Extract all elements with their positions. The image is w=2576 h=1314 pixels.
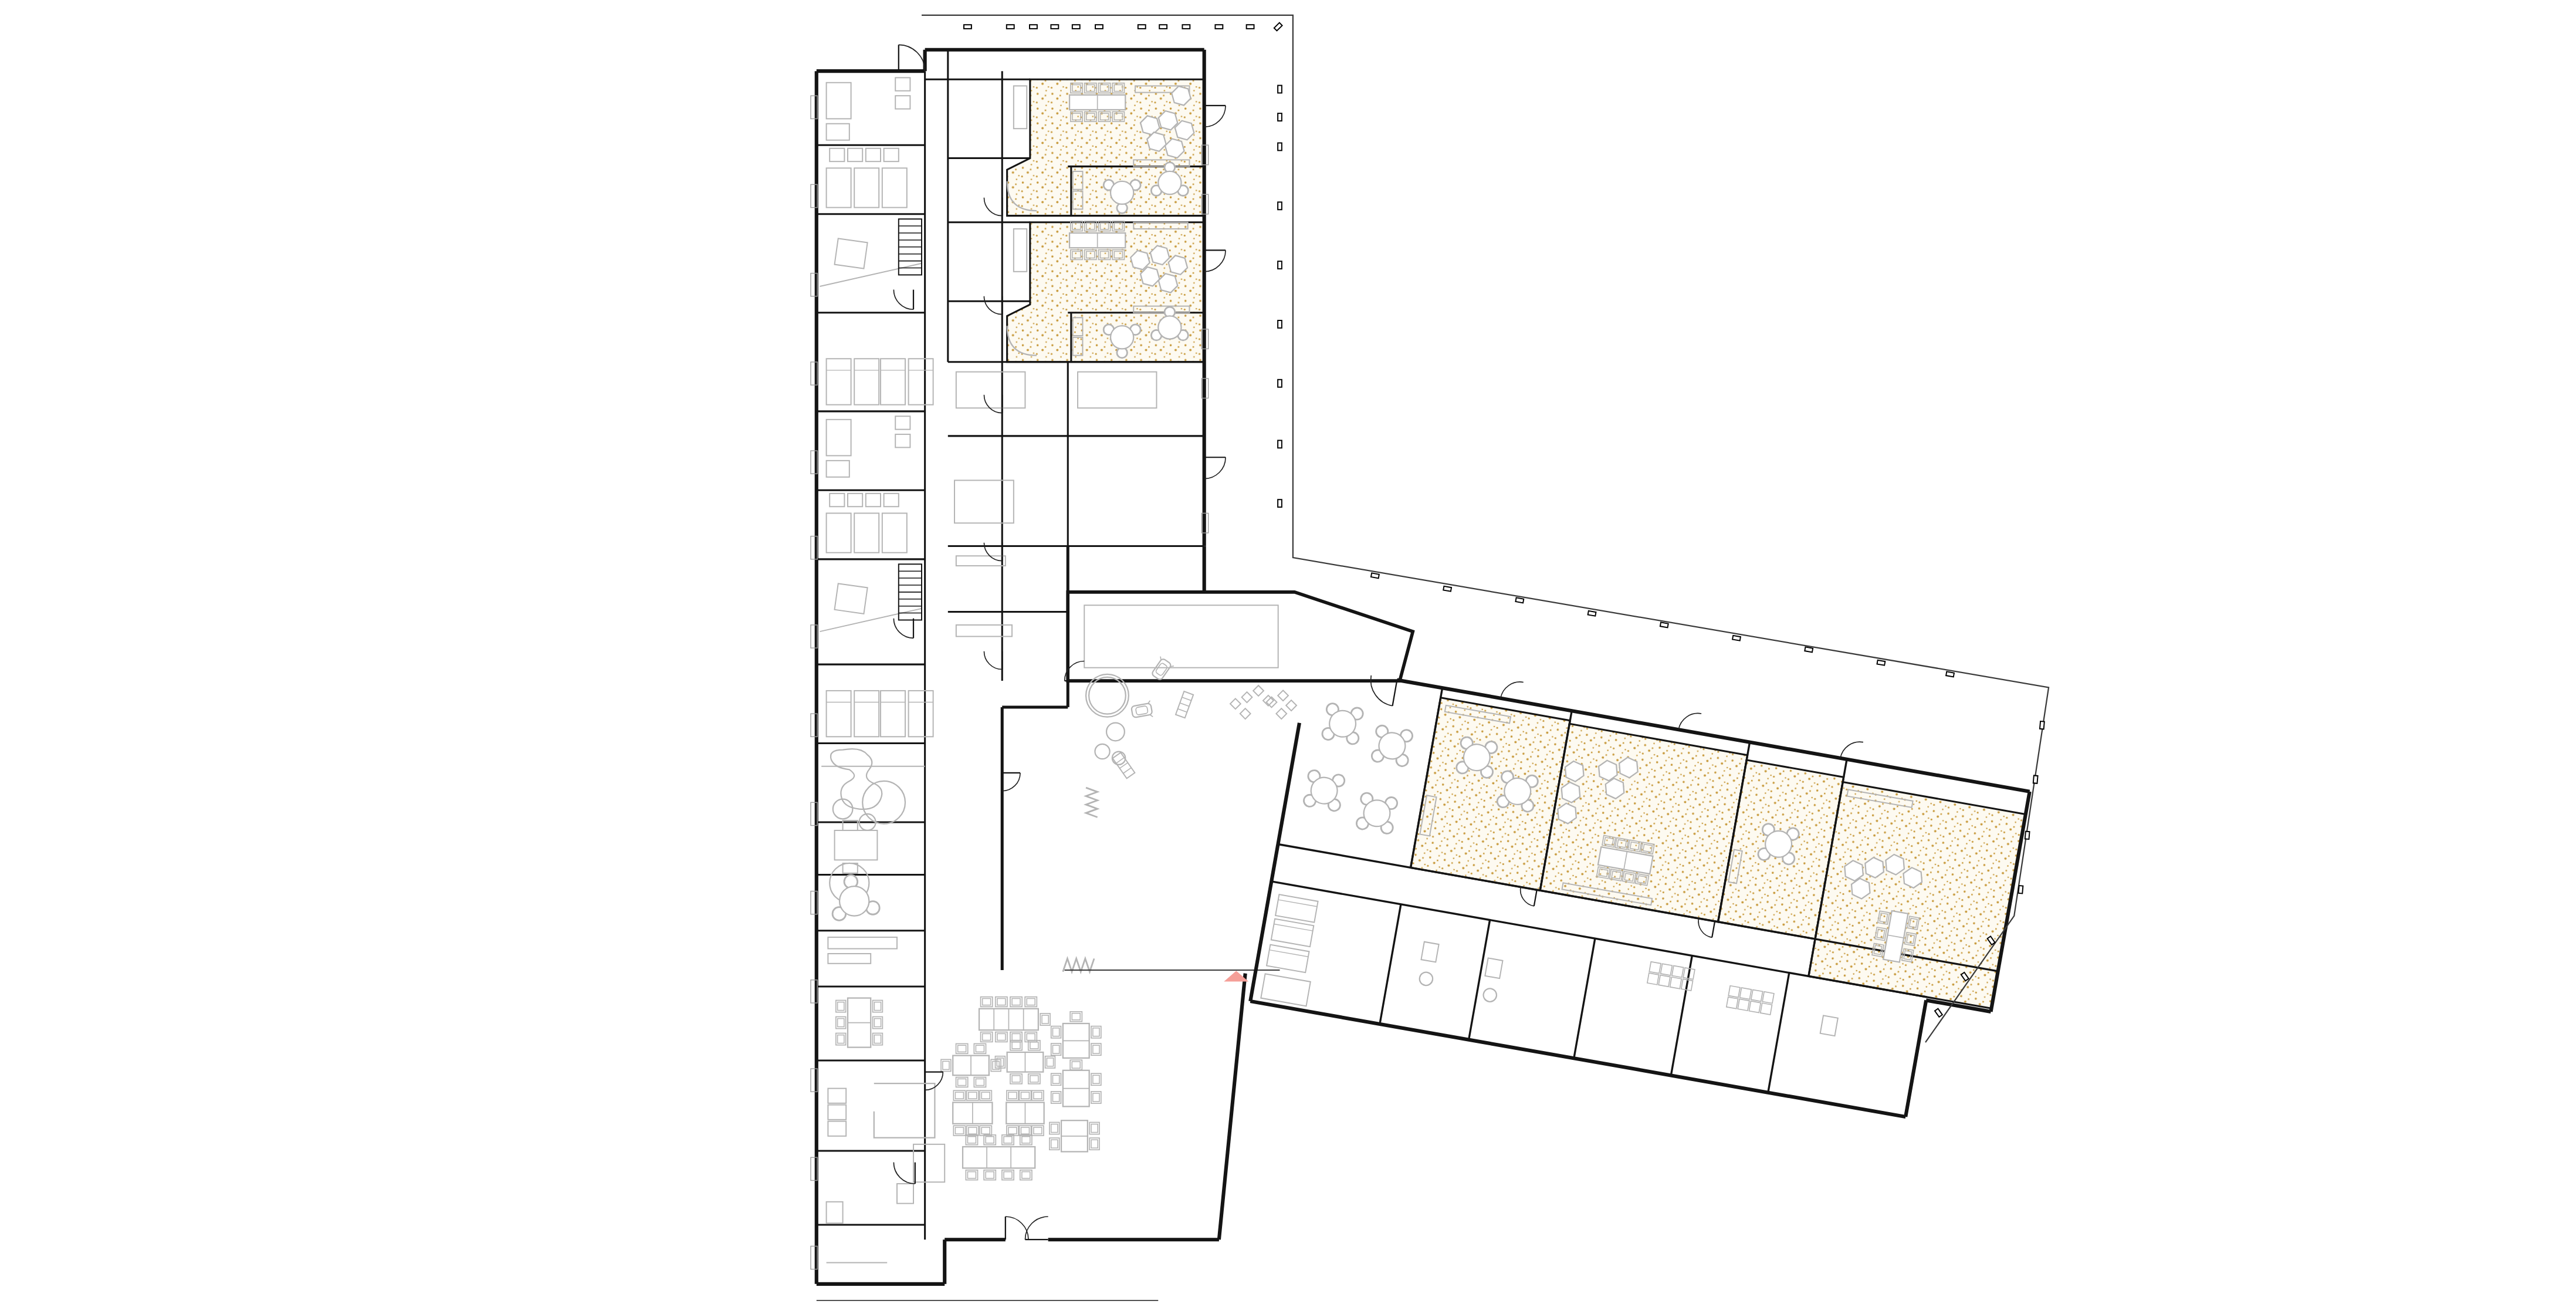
locker-grid xyxy=(1740,988,1752,999)
chair-inner xyxy=(1052,1075,1059,1083)
round-table xyxy=(1111,181,1133,204)
furniture xyxy=(830,494,844,506)
furniture xyxy=(1014,229,1027,272)
chair-inner xyxy=(838,1002,844,1011)
chair xyxy=(1070,1060,1082,1070)
ladder-toy-step xyxy=(1120,763,1128,769)
column-tick xyxy=(1215,25,1223,29)
column-tick xyxy=(2025,832,2030,839)
chair xyxy=(1050,1138,1059,1150)
chair xyxy=(980,1090,991,1100)
cot-bed xyxy=(1267,945,1309,973)
column-tick xyxy=(1278,143,1282,151)
door-arc xyxy=(1678,710,1701,733)
chair xyxy=(1032,1090,1044,1100)
column-tick xyxy=(1805,647,1813,652)
chair xyxy=(974,1043,986,1053)
furniture xyxy=(866,148,881,161)
furniture xyxy=(882,168,907,207)
round-table xyxy=(832,875,879,921)
chair xyxy=(1020,1135,1032,1145)
chair xyxy=(1051,1092,1061,1103)
door-arc xyxy=(899,45,925,71)
table-group xyxy=(1050,1120,1099,1151)
furniture xyxy=(848,148,862,161)
chair xyxy=(967,1090,979,1100)
chair-inner xyxy=(1012,1076,1020,1082)
chair xyxy=(1070,1012,1082,1022)
chair-inner xyxy=(997,998,1006,1005)
furniture xyxy=(827,513,851,552)
column-tick xyxy=(964,25,971,29)
interior-wall xyxy=(1469,920,1490,1040)
round-table xyxy=(1111,326,1133,349)
chair-inner xyxy=(1034,1127,1042,1134)
column-tick xyxy=(1371,573,1379,578)
chair-inner xyxy=(1022,1172,1030,1178)
table-group xyxy=(836,998,883,1048)
door-arc xyxy=(925,1072,943,1090)
column-tick xyxy=(1515,597,1524,603)
table-group xyxy=(1006,1090,1044,1136)
chair xyxy=(1091,1043,1101,1055)
play-cushion xyxy=(1278,690,1288,701)
chair xyxy=(966,1170,977,1180)
furniture xyxy=(895,96,910,109)
ladder-toy-step xyxy=(1123,768,1132,773)
car-detail xyxy=(1150,714,1153,717)
door-arc xyxy=(1002,773,1020,791)
chair-inner xyxy=(1012,1033,1020,1040)
chair xyxy=(1051,1073,1061,1085)
chair xyxy=(873,1017,883,1029)
chair-inner xyxy=(976,1079,984,1085)
chair-inner xyxy=(874,1035,881,1043)
chair xyxy=(873,1033,883,1045)
column-tick xyxy=(1278,440,1282,448)
furniture xyxy=(884,148,899,161)
chair-inner xyxy=(1012,1042,1020,1049)
floor-plan-drawing xyxy=(0,0,2576,1314)
door-arc xyxy=(899,45,925,71)
chair xyxy=(1019,1126,1031,1136)
chair xyxy=(836,1033,846,1045)
group-room-floor xyxy=(1540,724,1747,922)
counter xyxy=(1261,974,1311,1006)
door-arc xyxy=(984,651,1002,670)
table-top xyxy=(963,1147,1035,1168)
column-tick xyxy=(1007,25,1014,29)
chair xyxy=(966,1135,977,1145)
column-tick xyxy=(1138,25,1146,29)
column-tick xyxy=(1051,25,1058,29)
group-room-floor xyxy=(1809,782,2026,1008)
door-arc xyxy=(893,290,913,310)
column-tick xyxy=(1278,202,1282,210)
furniture xyxy=(895,77,910,90)
furniture xyxy=(1014,86,1027,129)
door-arc xyxy=(984,198,1002,216)
counter xyxy=(1421,942,1438,962)
chair-inner xyxy=(874,1002,881,1011)
furniture xyxy=(956,372,1025,408)
chair-inner xyxy=(838,1019,844,1027)
column-tick xyxy=(1443,586,1451,592)
play-cushion xyxy=(1242,692,1253,702)
chair-inner xyxy=(1027,1033,1035,1040)
chair xyxy=(981,1032,993,1042)
locker-grid xyxy=(1738,999,1749,1011)
furniture xyxy=(895,416,910,429)
column-tick xyxy=(1095,25,1103,29)
door-leaf xyxy=(1393,680,1397,706)
furniture xyxy=(828,954,871,964)
play-circle xyxy=(862,781,905,824)
door-arc xyxy=(1204,106,1226,127)
play-cushion xyxy=(1230,698,1241,709)
chair-inner xyxy=(1004,1137,1012,1143)
right-wing xyxy=(1250,645,2033,1128)
chair xyxy=(996,1032,1007,1042)
door-arc xyxy=(984,395,1002,413)
column-tick xyxy=(1072,25,1080,29)
furniture xyxy=(1078,372,1156,408)
chair-inner xyxy=(1030,1076,1038,1082)
interior-wall xyxy=(1671,955,1692,1075)
door-arc xyxy=(1204,457,1226,478)
chair-inner xyxy=(976,1045,984,1052)
column-tick xyxy=(1159,25,1167,29)
chair-inner xyxy=(983,1033,991,1040)
chair xyxy=(1010,1074,1022,1084)
chair-inner xyxy=(1034,1092,1042,1099)
furniture xyxy=(828,937,897,949)
chair-inner xyxy=(1021,1127,1029,1134)
chair-inner xyxy=(955,1127,963,1134)
chair xyxy=(1045,1056,1055,1068)
chair-inner xyxy=(1012,998,1020,1005)
chair xyxy=(984,1135,996,1145)
furniture xyxy=(828,1122,846,1136)
chair-inner xyxy=(997,1033,1006,1040)
counter xyxy=(1820,1015,1838,1036)
play-cushion xyxy=(1253,685,1264,696)
ladder-toy-step xyxy=(1180,703,1189,707)
locker-grid xyxy=(1670,977,1681,989)
car-body xyxy=(1131,703,1152,718)
furniture xyxy=(827,1202,843,1223)
column-tick xyxy=(1588,611,1596,616)
column-tick xyxy=(1182,25,1190,29)
door-arc xyxy=(1204,250,1226,271)
column-tick xyxy=(1278,499,1282,507)
interior-wall xyxy=(1380,904,1401,1024)
chair xyxy=(974,1077,986,1087)
furniture xyxy=(827,461,849,477)
door-arc xyxy=(893,619,913,639)
chair-inner xyxy=(1091,1124,1098,1133)
cot-bed xyxy=(881,691,905,737)
furniture xyxy=(866,494,881,506)
chair xyxy=(873,1001,883,1012)
door-arc xyxy=(893,1163,915,1184)
round-table xyxy=(1158,316,1181,339)
furniture xyxy=(1084,605,1278,667)
chair-inner xyxy=(1072,1014,1080,1020)
chair-inner xyxy=(1093,1028,1099,1036)
cot-bed xyxy=(909,691,933,737)
door-arc xyxy=(1002,773,1020,791)
car-detail xyxy=(1147,701,1150,704)
table-group xyxy=(995,1041,1055,1084)
cot-bed xyxy=(1271,919,1314,947)
ladder-toy xyxy=(1113,752,1135,778)
table-group xyxy=(953,1090,992,1136)
chair-inner xyxy=(969,1127,977,1134)
door-arc xyxy=(984,395,1002,413)
chair xyxy=(836,1017,846,1029)
furniture xyxy=(827,168,851,207)
chair-inner xyxy=(1093,1045,1099,1053)
chair-inner xyxy=(874,1019,881,1027)
furniture xyxy=(828,1105,846,1120)
cot-bed xyxy=(854,691,879,737)
door-arc xyxy=(925,1072,943,1090)
cot-bed xyxy=(827,359,851,404)
play-circle xyxy=(833,799,853,819)
chair xyxy=(1002,1170,1014,1180)
car-cabin xyxy=(1135,705,1148,715)
play-circle xyxy=(1089,677,1126,714)
column-tick xyxy=(1946,671,1954,677)
chair xyxy=(953,1090,965,1100)
chair xyxy=(1007,1090,1018,1100)
column-tick xyxy=(1278,380,1282,387)
door-arc xyxy=(893,290,913,310)
chair xyxy=(980,1126,991,1136)
door-arc xyxy=(1204,457,1226,478)
wc-fixture xyxy=(1419,971,1434,987)
chair-inner xyxy=(1072,1062,1080,1068)
round-table xyxy=(1158,171,1181,194)
chair xyxy=(1010,997,1022,1007)
column-tick xyxy=(1935,1009,1942,1017)
round-table xyxy=(840,886,869,916)
exterior-wall xyxy=(1250,1001,1905,1117)
car-body xyxy=(1151,658,1172,681)
chair xyxy=(1025,997,1037,1007)
cot-bed-line xyxy=(1270,950,1308,957)
chair xyxy=(1032,1126,1044,1136)
column-tick xyxy=(1278,113,1282,121)
door-leaf xyxy=(1712,921,1715,938)
door-leaf xyxy=(1534,890,1537,906)
ladder-toy xyxy=(1176,691,1193,718)
chair-inner xyxy=(1008,1092,1017,1099)
locker-grid xyxy=(1749,1001,1761,1013)
round-table xyxy=(1371,725,1413,767)
play-circle xyxy=(1095,744,1109,759)
chair xyxy=(1028,1074,1040,1084)
column-tick xyxy=(2040,721,2044,729)
ladder-toy-step xyxy=(1182,697,1191,701)
interior-wall xyxy=(1768,973,1789,1093)
chair xyxy=(1002,1135,1014,1145)
furniture xyxy=(827,420,851,456)
chair xyxy=(1040,1014,1050,1025)
play-cushion xyxy=(1286,700,1297,711)
chair xyxy=(1091,1092,1101,1103)
column-tick xyxy=(1274,23,1282,31)
column-tick xyxy=(1278,320,1282,328)
play-cushion xyxy=(1276,708,1287,719)
door-arc xyxy=(1204,106,1226,127)
counter xyxy=(1485,958,1502,978)
sofa xyxy=(835,238,868,268)
chair xyxy=(984,1170,996,1180)
chair-inner xyxy=(1022,1137,1030,1143)
chair-inner xyxy=(1027,998,1035,1005)
chair-inner xyxy=(1093,1093,1099,1102)
chair-inner xyxy=(943,1061,949,1069)
wc-fixture xyxy=(1482,988,1498,1003)
chair-inner xyxy=(955,1092,963,1099)
chair xyxy=(956,1077,968,1087)
table-group xyxy=(1051,1012,1101,1070)
chair-inner xyxy=(1030,1042,1038,1049)
chair xyxy=(941,1059,951,1071)
play-cushion xyxy=(1240,708,1251,719)
chair xyxy=(1007,1126,1018,1136)
chair-inner xyxy=(1051,1140,1058,1148)
column-tick xyxy=(1278,86,1282,93)
locker-grid xyxy=(1658,975,1670,987)
door-arc xyxy=(1204,250,1226,271)
chair-inner xyxy=(981,1092,990,1099)
chair xyxy=(996,997,1007,1007)
chair-inner xyxy=(967,1137,976,1143)
column-tick xyxy=(2019,886,2023,893)
furniture xyxy=(827,124,849,140)
chair-inner xyxy=(1052,1028,1059,1036)
chair xyxy=(1020,1170,1032,1180)
cot-bed xyxy=(1275,894,1318,923)
cot-bed-line xyxy=(1278,900,1317,907)
locker-grid xyxy=(1649,962,1661,974)
chair xyxy=(1010,1041,1022,1050)
cot-bed xyxy=(827,691,851,737)
chair xyxy=(1051,1043,1061,1055)
furniture xyxy=(897,1184,913,1204)
exterior-wall xyxy=(1905,1000,1926,1117)
furniture xyxy=(854,513,879,552)
plan-layers xyxy=(811,15,2049,1301)
ladder-toy-step xyxy=(1178,709,1187,712)
furniture xyxy=(882,513,907,552)
door-arc xyxy=(893,1163,915,1184)
chair xyxy=(1019,1090,1031,1100)
chair-inner xyxy=(1008,1127,1017,1134)
exterior-wall xyxy=(1250,723,1299,1001)
chair xyxy=(981,997,993,1007)
locker-grid xyxy=(1672,966,1684,978)
furniture xyxy=(848,494,862,506)
furniture xyxy=(854,168,879,207)
chair-inner xyxy=(969,1092,977,1099)
chair-inner xyxy=(983,998,991,1005)
chair-inner xyxy=(1021,1092,1029,1099)
chair xyxy=(836,1001,846,1012)
chair-inner xyxy=(838,1035,844,1043)
column-tick xyxy=(2033,775,2038,783)
column-tick xyxy=(1278,261,1282,269)
sofa xyxy=(835,583,868,613)
chair-inner xyxy=(1052,1045,1059,1053)
table-group xyxy=(1051,1070,1101,1107)
chair-inner xyxy=(986,1172,994,1178)
chair xyxy=(956,1043,968,1053)
chair xyxy=(1028,1041,1040,1050)
column-tick xyxy=(1030,25,1037,29)
door-arc xyxy=(984,198,1002,216)
chair xyxy=(995,1056,1005,1068)
chair xyxy=(1051,1026,1061,1038)
cot-bed xyxy=(854,359,879,404)
chair-inner xyxy=(981,1127,990,1134)
floor-plan-canvas xyxy=(0,0,2576,1314)
column-tick xyxy=(1247,25,1254,29)
table-group xyxy=(941,1043,1001,1087)
door-arc xyxy=(1840,739,1863,762)
round-table xyxy=(1321,702,1363,745)
door-arc xyxy=(984,296,1002,315)
table-group xyxy=(979,997,1050,1042)
furniture xyxy=(895,434,910,447)
locker-grid xyxy=(1762,992,1774,1004)
column-tick xyxy=(1877,660,1886,666)
chair xyxy=(953,1126,965,1136)
door-arc xyxy=(984,651,1002,670)
chair-inner xyxy=(986,1137,994,1143)
chair-inner xyxy=(958,1045,966,1052)
exterior-wall xyxy=(1219,974,1245,1240)
cot-bed xyxy=(909,359,933,404)
accordion-partition xyxy=(1086,788,1098,817)
locker-grid xyxy=(1647,973,1659,985)
chair xyxy=(1089,1122,1099,1134)
round-table xyxy=(1356,792,1398,835)
chair xyxy=(991,1059,1001,1071)
chair-inner xyxy=(1051,1124,1058,1133)
door-arc xyxy=(893,619,913,639)
chair-inner xyxy=(1093,1075,1099,1083)
chair-inner xyxy=(1047,1058,1053,1066)
door-arc xyxy=(1501,679,1524,702)
table-group xyxy=(963,1135,1035,1180)
chair xyxy=(1091,1073,1101,1085)
furniture xyxy=(835,830,878,860)
chair xyxy=(967,1126,979,1136)
round-table xyxy=(1303,769,1345,812)
locker-grid xyxy=(1761,1003,1772,1015)
car-cabin xyxy=(1155,663,1168,676)
locker-grid xyxy=(1727,997,1738,1009)
toy-car xyxy=(1149,657,1174,683)
play-circle xyxy=(1106,723,1125,741)
toy-car xyxy=(1130,701,1153,720)
locker-grid xyxy=(1751,989,1763,1001)
chair-inner xyxy=(1052,1093,1059,1102)
